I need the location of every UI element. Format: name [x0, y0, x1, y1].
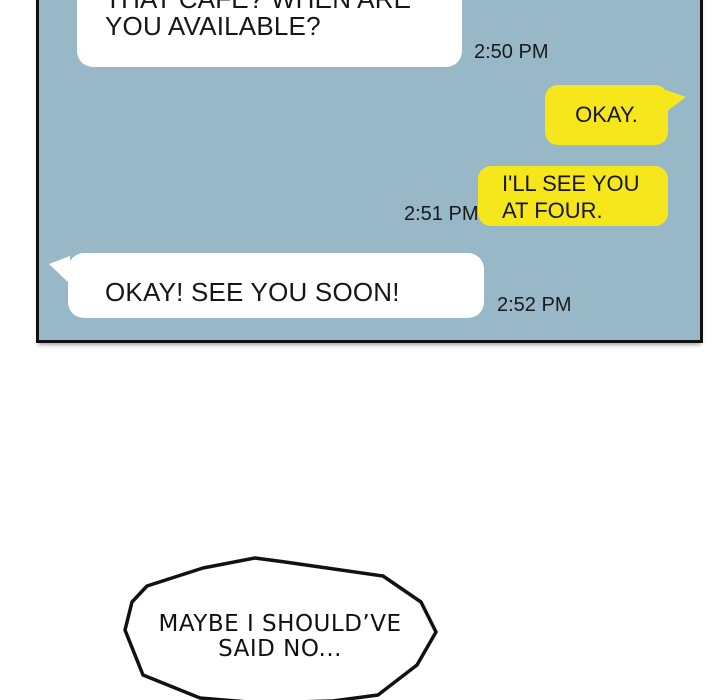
comic-panel-page: THAT CAFE? WHEN ARE YOU AVAILABLE? 2:50 … — [0, 0, 720, 700]
message-text-line: OKAY! SEE YOU SOON! — [105, 277, 400, 307]
message-timestamp: 2:50 PM — [474, 41, 548, 63]
message-text-line: I'LL SEE YOU — [502, 170, 668, 197]
thought-bubble: MAYBE I SHOULD’VE SAID NO... — [115, 612, 445, 662]
outgoing-message-bubble: I'LL SEE YOU AT FOUR. — [478, 166, 668, 226]
thought-text-line: SAID NO... — [115, 637, 445, 662]
outgoing-message-bubble: OKAY. — [545, 85, 668, 145]
thought-text-line: MAYBE I SHOULD’VE — [115, 612, 445, 637]
message-text-line: OKAY. — [575, 102, 638, 127]
message-timestamp: 2:52 PM — [497, 294, 571, 316]
message-timestamp: 2:51 PM — [404, 203, 478, 225]
message-text-line: YOU AVAILABLE? — [105, 13, 462, 40]
message-text-line: AT FOUR. — [502, 197, 668, 224]
incoming-message-bubble: OKAY! SEE YOU SOON! — [68, 253, 484, 318]
incoming-message-bubble: THAT CAFE? WHEN ARE YOU AVAILABLE? — [77, 0, 462, 67]
